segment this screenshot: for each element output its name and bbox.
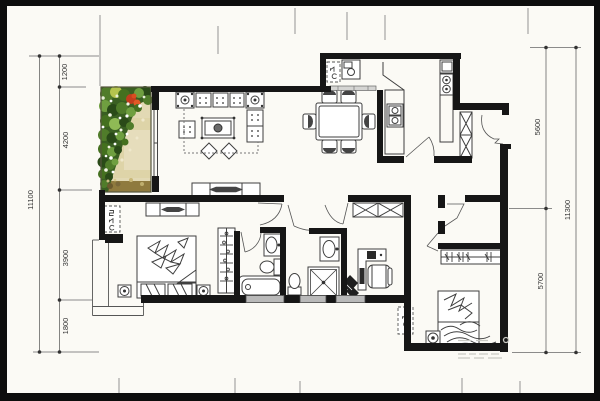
svg-text:11100: 11100 xyxy=(26,190,35,210)
svg-text:3900: 3900 xyxy=(61,250,70,267)
svg-text:4200: 4200 xyxy=(61,132,70,149)
svg-text:1200: 1200 xyxy=(60,64,69,81)
svg-text:1800: 1800 xyxy=(61,318,70,335)
svg-text:11300: 11300 xyxy=(563,200,572,220)
svg-text:5700: 5700 xyxy=(536,273,545,290)
svg-text:5600: 5600 xyxy=(533,119,542,136)
